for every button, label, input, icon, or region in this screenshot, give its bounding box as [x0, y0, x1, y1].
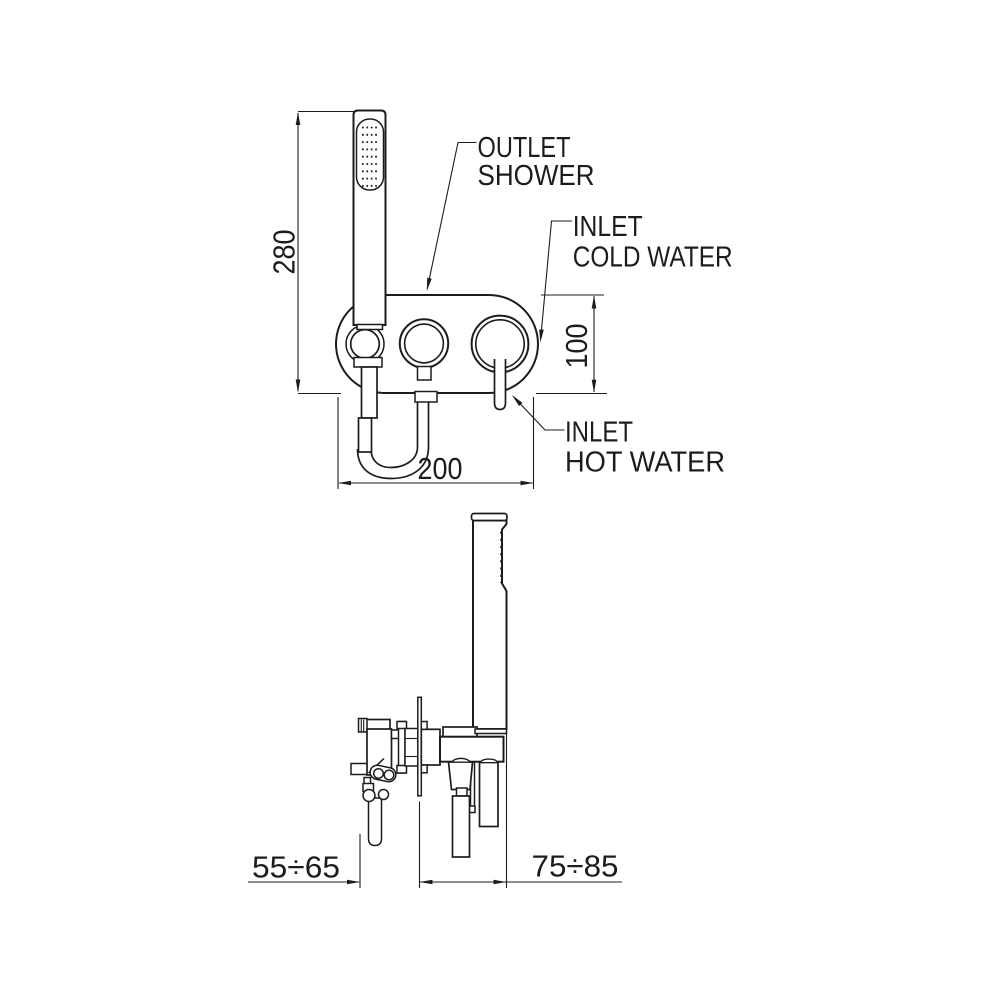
top-spindle-cap — [359, 719, 368, 733]
swivel-ball-right — [379, 790, 389, 800]
diverter-tab — [418, 367, 432, 381]
hose-elbow-left — [351, 764, 368, 775]
hand-shower-side — [472, 514, 508, 730]
holder-clamp — [357, 325, 383, 330]
hand-shower-side-body — [473, 521, 507, 730]
holder-bracket — [354, 358, 382, 368]
leader-inlet-hot-water: INLET HOT WATER — [510, 393, 725, 478]
label-outlet-shower-line2: SHOWER — [478, 160, 595, 192]
dim-protrusion-depth: 75÷85 — [532, 849, 619, 884]
diverter-cone-side — [449, 762, 473, 790]
lever-tube-side — [480, 763, 499, 827]
leader-outlet-shower: OUTLET SHOWER — [425, 132, 595, 291]
dimension-55-65: 55÷65 — [248, 802, 420, 889]
dim-overall-height: 280 — [267, 230, 302, 275]
label-inlet-hot-line1: INLET — [565, 417, 633, 449]
dim-recess-depth: 55÷65 — [252, 850, 340, 885]
spray-face — [357, 119, 384, 190]
lever-stem — [495, 359, 506, 410]
dimension-100: 100 — [536, 295, 607, 394]
hose-drop-side — [369, 798, 382, 846]
mixer-body-side — [440, 737, 504, 762]
under-body-parts — [449, 758, 499, 857]
label-inlet-cold-line1: INLET — [573, 211, 643, 243]
hose-connector-upper — [362, 367, 378, 418]
diverter-dome — [453, 758, 470, 761]
dim-body-height: 100 — [559, 324, 594, 369]
label-inlet-hot-line2: HOT WATER — [565, 447, 725, 479]
side-view: 55÷65 75÷85 — [248, 514, 622, 889]
lever-dome — [481, 759, 498, 762]
wall-mount-block — [421, 729, 440, 765]
holder-ring — [351, 330, 380, 359]
dim-body-width: 200 — [418, 451, 463, 486]
hose-connector-lower — [359, 418, 372, 452]
holder-arm-side — [443, 727, 477, 737]
diverter-nut — [457, 788, 468, 796]
hose-inner-curve — [371, 401, 418, 468]
leader-inlet-cold-water: INLET COLD WATER — [538, 211, 733, 343]
swivel-ball-left — [363, 790, 375, 802]
front-view: 280 100 200 OUTLET SHOWER — [267, 111, 733, 490]
handle-seat — [475, 729, 507, 734]
technical-drawing-page: 280 100 200 OUTLET SHOWER — [0, 0, 1000, 1000]
shower-mixer-drawing: 280 100 200 OUTLET SHOWER — [0, 0, 1000, 1000]
hose-body-outlet — [415, 392, 437, 403]
hand-shower-side-cap — [472, 514, 508, 521]
label-inlet-cold-line2: COLD WATER — [573, 242, 733, 274]
cartridge-cylinder — [405, 729, 418, 767]
diverter-tube — [453, 796, 470, 857]
